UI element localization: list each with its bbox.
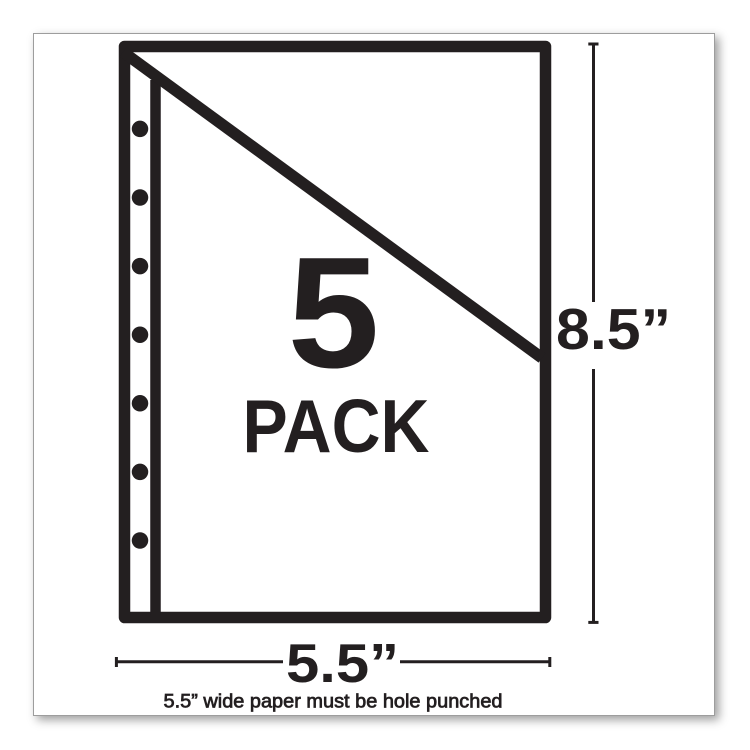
svg-text:8.5”: 8.5” xyxy=(556,298,671,362)
svg-text:5.5” wide paper must be hole p: 5.5” wide paper must be hole punched xyxy=(164,691,503,713)
svg-text:5: 5 xyxy=(288,225,380,401)
svg-text:5.5”: 5.5” xyxy=(286,632,399,694)
svg-text:PACK: PACK xyxy=(243,384,430,468)
